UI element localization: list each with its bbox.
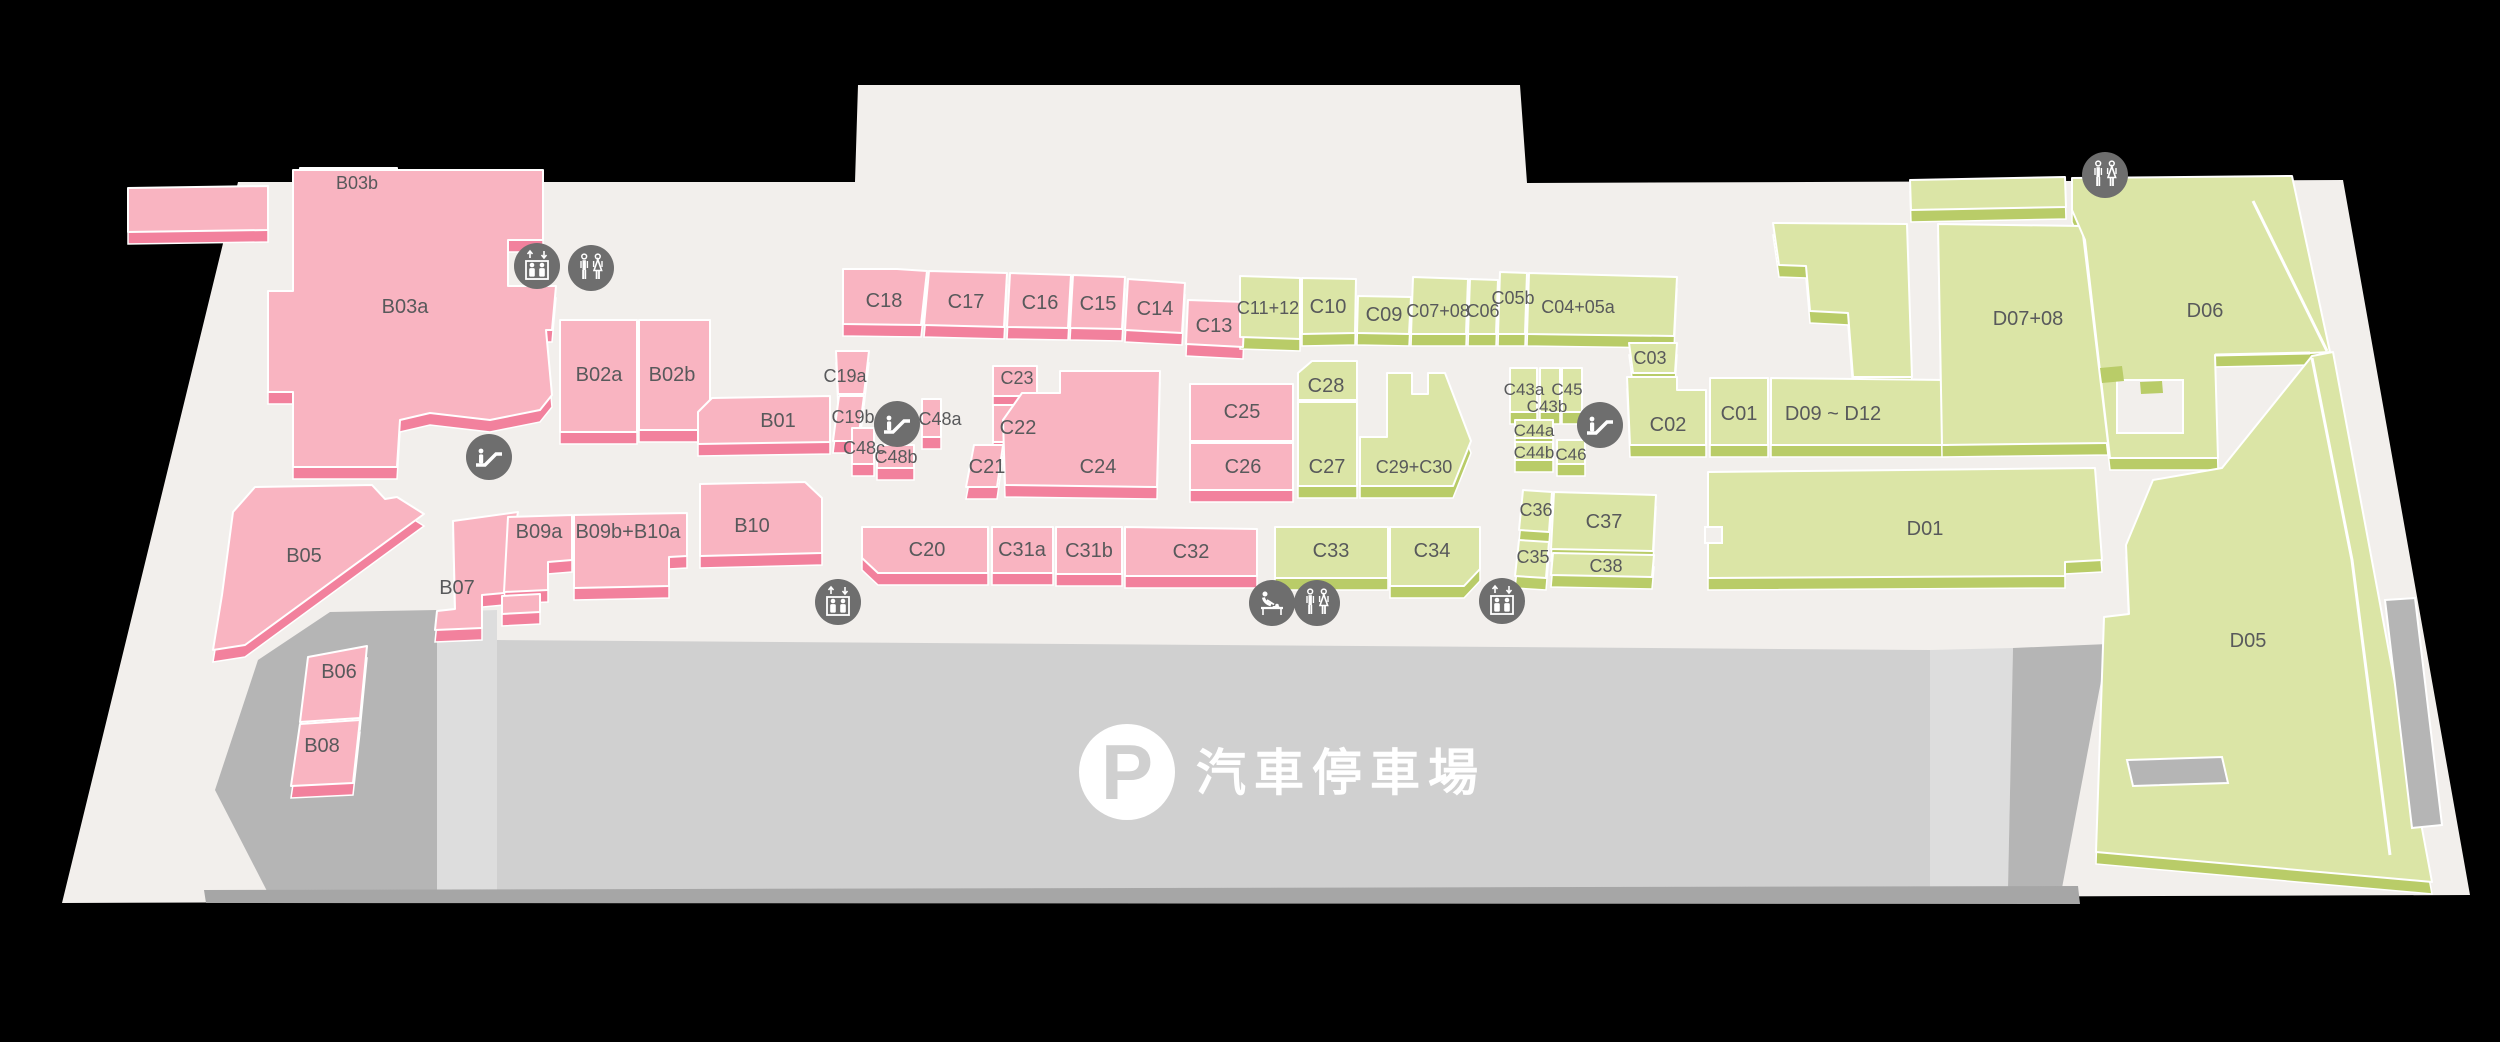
unit-C37[interactable] (1551, 492, 1656, 551)
elevator-icon (1479, 578, 1525, 624)
unit-C43b[interactable] (1540, 368, 1560, 412)
unit-C16[interactable] (1007, 273, 1071, 328)
unit-C23[interactable] (993, 366, 1037, 396)
d05-slot (2127, 757, 2228, 786)
baby-change-icon (1249, 580, 1295, 626)
parking-light-right (1930, 648, 2013, 888)
parking-area-label: 汽車停車場 (1196, 745, 1486, 801)
unit-C44a[interactable] (1515, 420, 1553, 438)
unit-C28[interactable] (1298, 361, 1357, 400)
toilets-icon (568, 245, 614, 291)
unit-B10[interactable] (700, 482, 822, 556)
unit-B02a[interactable] (560, 320, 637, 432)
parking-p-glyph: P (1101, 728, 1153, 816)
unit-C03[interactable] (1629, 343, 1677, 373)
unit-B06[interactable] (300, 646, 367, 722)
d06-step-1 (2100, 366, 2124, 383)
unit-C0708[interactable] (1411, 277, 1468, 334)
d06-step-2 (2140, 381, 2163, 394)
unit-block[interactable] (502, 594, 540, 614)
unit-D0708[interactable] (1938, 224, 2108, 445)
unit-C48b[interactable] (877, 445, 914, 468)
unit-C48c[interactable] (852, 428, 874, 464)
unit-C35[interactable] (1515, 540, 1549, 578)
elevator-icon (815, 579, 861, 625)
unit-C46[interactable] (1557, 440, 1585, 464)
unit-C05b[interactable] (1498, 272, 1527, 334)
unit-C20[interactable] (862, 527, 988, 573)
unit-C43a[interactable] (1510, 368, 1537, 412)
unit-C15[interactable] (1070, 275, 1125, 329)
escalator-icon (466, 434, 512, 480)
unit-C32[interactable] (1125, 527, 1257, 576)
unit-C45[interactable] (1562, 368, 1582, 412)
parking-band (437, 610, 497, 890)
unit-C26[interactable] (1190, 443, 1293, 490)
unit-C09[interactable] (1357, 296, 1411, 334)
unit-B08[interactable] (291, 720, 360, 786)
unit-C48a[interactable] (922, 399, 941, 437)
unit-C1112[interactable] (1240, 276, 1300, 339)
map-stage: B03bB03aB02aB02bB05B06B08B07B09aB09b+B10… (0, 0, 2500, 1042)
unit-block[interactable] (128, 186, 268, 232)
unit-C14[interactable] (1125, 279, 1185, 333)
unit-C0405a[interactable] (1527, 273, 1677, 336)
unit-B01[interactable] (698, 396, 830, 444)
unit-C38[interactable] (1551, 553, 1654, 577)
unit-C13[interactable] (1186, 300, 1245, 347)
corridor-divider (2215, 353, 2310, 355)
unit-C33[interactable] (1275, 527, 1388, 578)
unit-C19a[interactable] (836, 351, 869, 394)
unit-C31a[interactable] (992, 527, 1053, 573)
unit-C18[interactable] (843, 269, 927, 325)
mall-floor-map: B03bB03aB02aB02bB05B06B08B07B09aB09b+B10… (0, 0, 2500, 1042)
unit-C01[interactable] (1710, 378, 1768, 445)
unit-C36[interactable] (1519, 490, 1552, 532)
unit-C44b[interactable] (1515, 442, 1553, 460)
unit-D01[interactable] (1708, 468, 2102, 578)
unit-C17[interactable] (924, 271, 1007, 327)
unit-C06[interactable] (1468, 279, 1498, 334)
unit-C31b[interactable] (1056, 527, 1122, 574)
toilets-icon (1294, 580, 1340, 626)
unit-D09D12[interactable] (1771, 378, 1948, 445)
toilets-icon (2082, 152, 2128, 198)
escalator-icon (1577, 402, 1623, 448)
unit-C25[interactable] (1190, 384, 1293, 441)
unit-C27[interactable] (1298, 402, 1357, 486)
unit-C34[interactable] (1390, 527, 1480, 586)
elevator-icon (514, 243, 560, 289)
unit-C10[interactable] (1302, 278, 1356, 334)
unit-block[interactable] (1910, 177, 2066, 210)
escalator-icon (874, 401, 920, 447)
d01-notch (1705, 527, 1722, 543)
